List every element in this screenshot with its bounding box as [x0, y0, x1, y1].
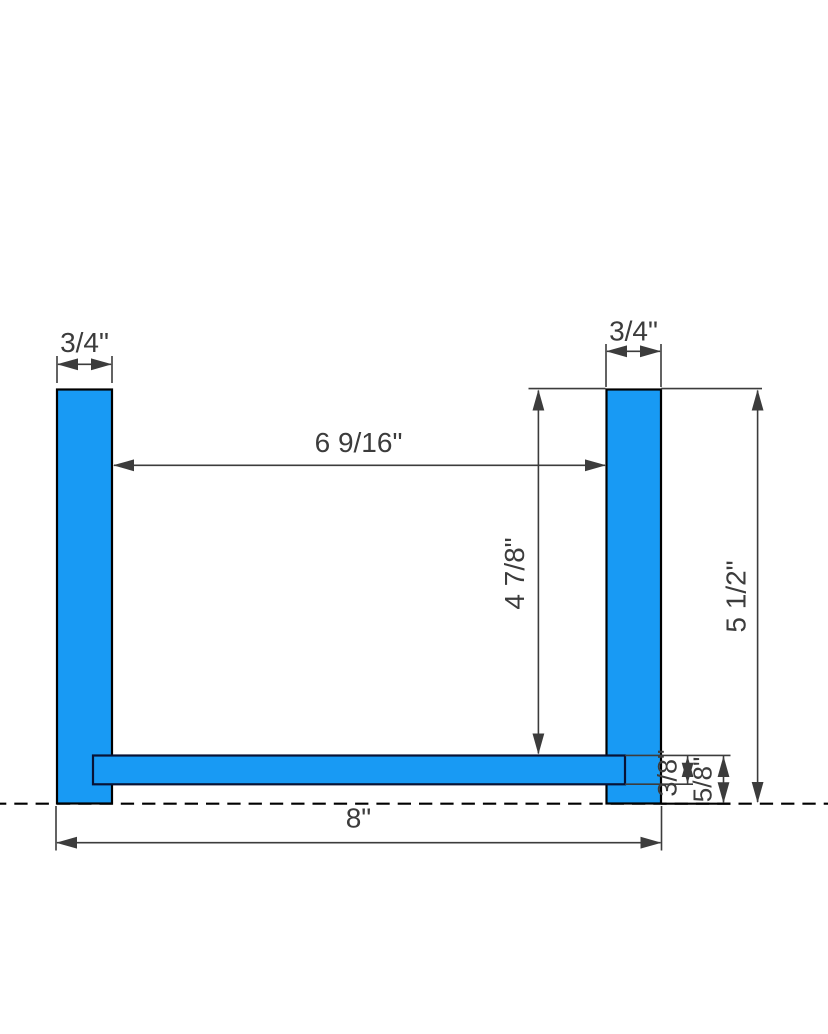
svg-text:3/8": 3/8" — [653, 749, 683, 796]
svg-text:5 1/2": 5 1/2" — [721, 560, 752, 632]
svg-text:4 7/8": 4 7/8" — [499, 537, 530, 609]
svg-text:3/4": 3/4" — [60, 327, 109, 358]
svg-text:3/4": 3/4" — [609, 316, 658, 347]
svg-text:8": 8" — [346, 803, 372, 834]
svg-text:5/8": 5/8" — [688, 757, 718, 802]
svg-text:6 9/16": 6 9/16" — [315, 427, 403, 458]
